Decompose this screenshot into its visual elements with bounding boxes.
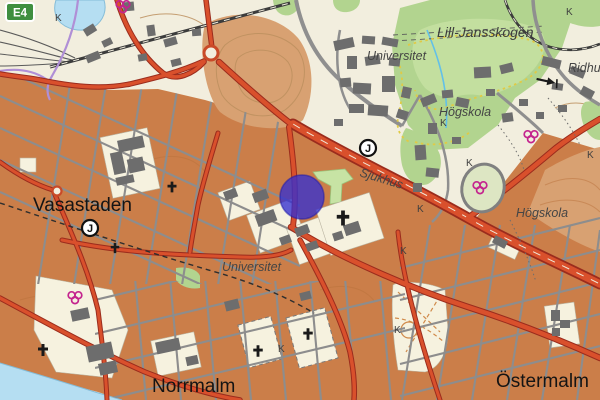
route-badge-e4: E4: [6, 3, 34, 21]
rail-station-letter: J: [87, 223, 93, 235]
rail-station-marker[interactable]: J: [360, 140, 376, 156]
church-k-label: K: [278, 344, 285, 355]
church-k-label: K: [587, 150, 594, 161]
place-label-universitet-central: Universitet: [222, 260, 282, 274]
church-k-label: K: [417, 204, 424, 215]
place-label-hogskola-north: Högskola: [439, 105, 491, 119]
rail-station-letter: J: [365, 143, 371, 155]
church-k-label: K: [400, 246, 407, 257]
church-k-label: K: [440, 118, 447, 129]
position-marker-circle[interactable]: [280, 175, 324, 219]
district-label-vasastaden: Vasastaden: [33, 195, 132, 216]
rail-station-marker[interactable]: J: [82, 220, 98, 236]
church-k-label: K: [466, 158, 473, 169]
church-k-label: K: [566, 7, 573, 18]
place-label-universitet-north: Universitet: [367, 49, 427, 63]
place-label-hogskola-east: Högskola: [516, 206, 568, 220]
place-label-lill-jansskogen: Lill-Jansskogen: [437, 24, 534, 40]
district-label-norrmalm: Norrmalm: [152, 376, 235, 397]
route-badge-text: E4: [13, 8, 28, 20]
map-viewport[interactable]: Vasastaden Norrmalm Östermalm Lill-Janss…: [0, 0, 600, 400]
map-canvas[interactable]: Vasastaden Norrmalm Östermalm Lill-Janss…: [0, 0, 600, 400]
place-label-ridhus: Ridhus: [568, 61, 600, 75]
district-label-ostermalm: Östermalm: [496, 371, 589, 392]
church-k-label: K: [55, 13, 62, 24]
position-marker[interactable]: [280, 175, 324, 219]
church-k-label: K: [394, 325, 401, 336]
